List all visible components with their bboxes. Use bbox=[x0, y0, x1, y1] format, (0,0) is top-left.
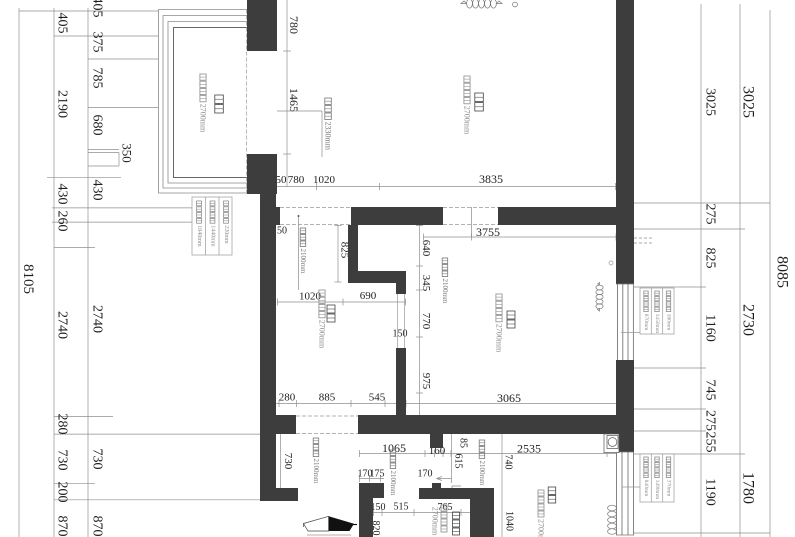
svg-text:2700mm: 2700mm bbox=[537, 519, 546, 537]
svg-text:2100mm: 2100mm bbox=[441, 279, 449, 304]
svg-text:280: 280 bbox=[55, 414, 70, 435]
svg-text:3835: 3835 bbox=[479, 172, 503, 186]
svg-text:730: 730 bbox=[282, 453, 294, 470]
svg-text:3025: 3025 bbox=[703, 88, 718, 116]
svg-text:430: 430 bbox=[55, 184, 70, 205]
svg-text:1450mm: 1450mm bbox=[654, 314, 660, 334]
svg-text:200: 200 bbox=[55, 482, 70, 503]
svg-text:405: 405 bbox=[90, 0, 105, 18]
svg-text:345: 345 bbox=[420, 275, 432, 292]
svg-text:2740: 2740 bbox=[55, 311, 70, 339]
svg-text:975: 975 bbox=[420, 373, 432, 390]
svg-text:280: 280 bbox=[279, 392, 296, 404]
svg-text:2700mm: 2700mm bbox=[431, 507, 440, 536]
svg-text:770: 770 bbox=[420, 313, 432, 330]
svg-text:50: 50 bbox=[277, 226, 287, 237]
svg-text:545: 545 bbox=[369, 392, 386, 404]
svg-text:690: 690 bbox=[360, 290, 377, 302]
svg-text:1780: 1780 bbox=[740, 472, 757, 504]
svg-text:3755: 3755 bbox=[476, 225, 500, 239]
svg-text:2535: 2535 bbox=[517, 442, 541, 456]
svg-text:220mm: 220mm bbox=[223, 225, 229, 244]
svg-text:785: 785 bbox=[90, 68, 105, 89]
svg-text:1020: 1020 bbox=[313, 174, 336, 186]
svg-text:825: 825 bbox=[703, 248, 718, 269]
svg-text:1040mm: 1040mm bbox=[196, 225, 202, 247]
svg-text:870mm: 870mm bbox=[643, 314, 649, 332]
svg-text:2330mm: 2330mm bbox=[324, 122, 333, 151]
svg-text:430: 430 bbox=[90, 180, 105, 201]
svg-text:680: 680 bbox=[90, 115, 105, 136]
svg-text:275: 275 bbox=[703, 410, 718, 431]
svg-text:8105: 8105 bbox=[20, 264, 36, 294]
svg-text:2700mm: 2700mm bbox=[199, 104, 208, 133]
svg-text:780: 780 bbox=[287, 16, 301, 34]
svg-text:3065: 3065 bbox=[497, 391, 521, 405]
svg-text:730: 730 bbox=[90, 449, 105, 470]
svg-text:745: 745 bbox=[703, 380, 718, 401]
svg-text:370mm: 370mm bbox=[666, 480, 672, 498]
svg-text:255: 255 bbox=[703, 432, 718, 453]
svg-text:515: 515 bbox=[394, 502, 409, 513]
svg-text:1040: 1040 bbox=[504, 511, 515, 531]
svg-text:870: 870 bbox=[55, 516, 70, 537]
svg-text:260: 260 bbox=[55, 211, 70, 232]
svg-text:885: 885 bbox=[319, 392, 336, 404]
svg-text:375: 375 bbox=[90, 32, 105, 53]
svg-text:640: 640 bbox=[420, 240, 432, 257]
svg-text:3025: 3025 bbox=[740, 86, 757, 118]
svg-text:2190: 2190 bbox=[55, 90, 70, 118]
svg-text:50: 50 bbox=[276, 174, 288, 186]
svg-text:2700mm: 2700mm bbox=[495, 324, 504, 353]
svg-text:730: 730 bbox=[55, 450, 70, 471]
svg-text:175: 175 bbox=[370, 469, 385, 480]
svg-text:1490mm: 1490mm bbox=[654, 480, 660, 500]
svg-text:2100mm: 2100mm bbox=[299, 249, 307, 274]
svg-text:1190: 1190 bbox=[703, 478, 718, 505]
svg-text:1465: 1465 bbox=[287, 88, 301, 112]
svg-text:170: 170 bbox=[418, 469, 433, 480]
svg-text:840mm: 840mm bbox=[643, 480, 649, 498]
svg-text:2100mm: 2100mm bbox=[478, 461, 486, 486]
svg-text:2740: 2740 bbox=[90, 305, 105, 333]
svg-text:2100mm: 2100mm bbox=[389, 471, 397, 496]
svg-text:2700mm: 2700mm bbox=[463, 106, 472, 135]
svg-text:2700mm: 2700mm bbox=[318, 320, 327, 349]
svg-text:2100mm: 2100mm bbox=[312, 459, 320, 484]
svg-text:85: 85 bbox=[458, 438, 469, 448]
svg-text:380mm: 380mm bbox=[666, 314, 672, 332]
svg-text:150: 150 bbox=[393, 329, 408, 340]
svg-text:740: 740 bbox=[503, 455, 514, 470]
svg-text:1440mm: 1440mm bbox=[210, 225, 216, 247]
svg-text:8085: 8085 bbox=[774, 256, 791, 288]
svg-text:870: 870 bbox=[90, 516, 105, 537]
svg-text:2730: 2730 bbox=[740, 304, 757, 336]
svg-text:405: 405 bbox=[55, 13, 70, 34]
svg-text:275: 275 bbox=[703, 204, 718, 225]
svg-text:1020: 1020 bbox=[299, 291, 322, 303]
svg-text:780: 780 bbox=[288, 174, 305, 186]
svg-text:615: 615 bbox=[453, 454, 464, 469]
svg-text:350: 350 bbox=[120, 143, 135, 163]
svg-text:1160: 1160 bbox=[703, 314, 718, 341]
